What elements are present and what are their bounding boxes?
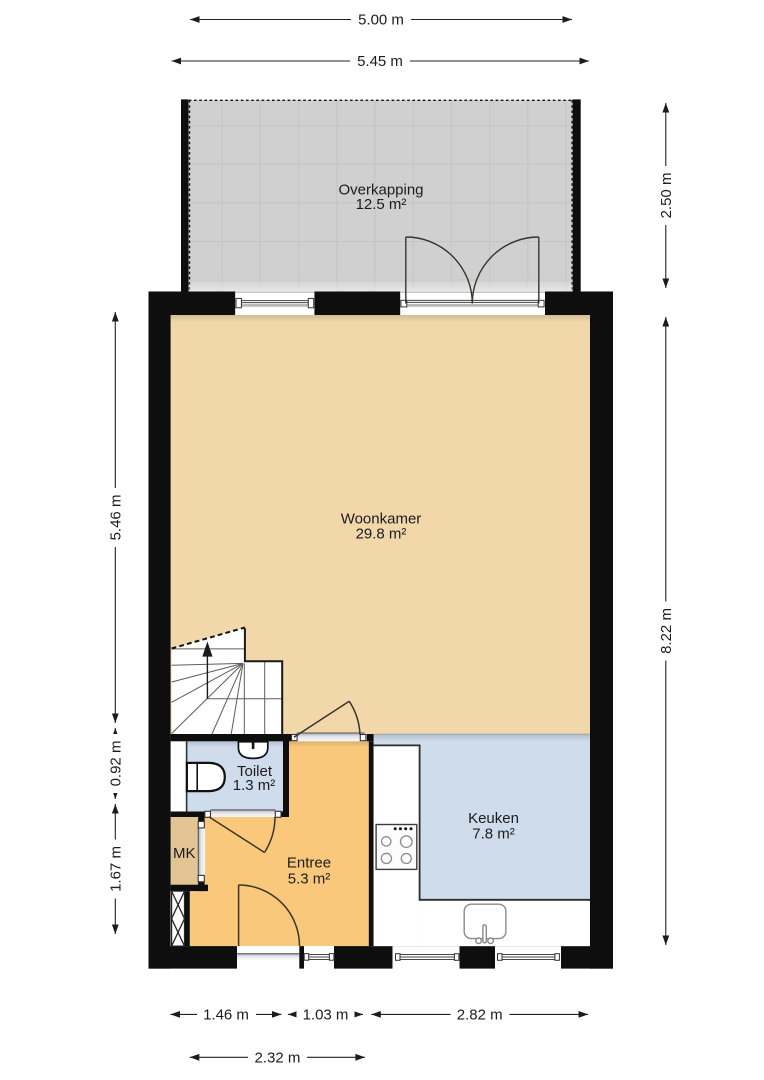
- svg-text:5.46 m: 5.46 m: [107, 495, 124, 541]
- svg-text:7.8 m²: 7.8 m²: [472, 825, 515, 842]
- svg-text:8.22 m: 8.22 m: [658, 608, 675, 654]
- svg-text:1.3 m²: 1.3 m²: [233, 777, 276, 794]
- svg-text:29.8 m²: 29.8 m²: [356, 525, 407, 542]
- svg-text:2.32 m: 2.32 m: [254, 1049, 300, 1066]
- svg-text:1.67 m: 1.67 m: [107, 846, 124, 892]
- svg-text:Entree: Entree: [287, 855, 331, 872]
- svg-text:5.00 m: 5.00 m: [358, 12, 404, 29]
- svg-text:1.03 m: 1.03 m: [303, 1007, 349, 1024]
- svg-text:2.82 m: 2.82 m: [457, 1007, 503, 1024]
- svg-text:5.45 m: 5.45 m: [357, 53, 403, 70]
- svg-text:0.92 m: 0.92 m: [107, 741, 124, 787]
- svg-text:12.5 m²: 12.5 m²: [356, 196, 407, 213]
- svg-text:1.46 m: 1.46 m: [203, 1007, 249, 1024]
- svg-text:5.3 m²: 5.3 m²: [288, 871, 331, 888]
- svg-text:2.50 m: 2.50 m: [658, 173, 675, 219]
- svg-text:MK: MK: [173, 845, 196, 862]
